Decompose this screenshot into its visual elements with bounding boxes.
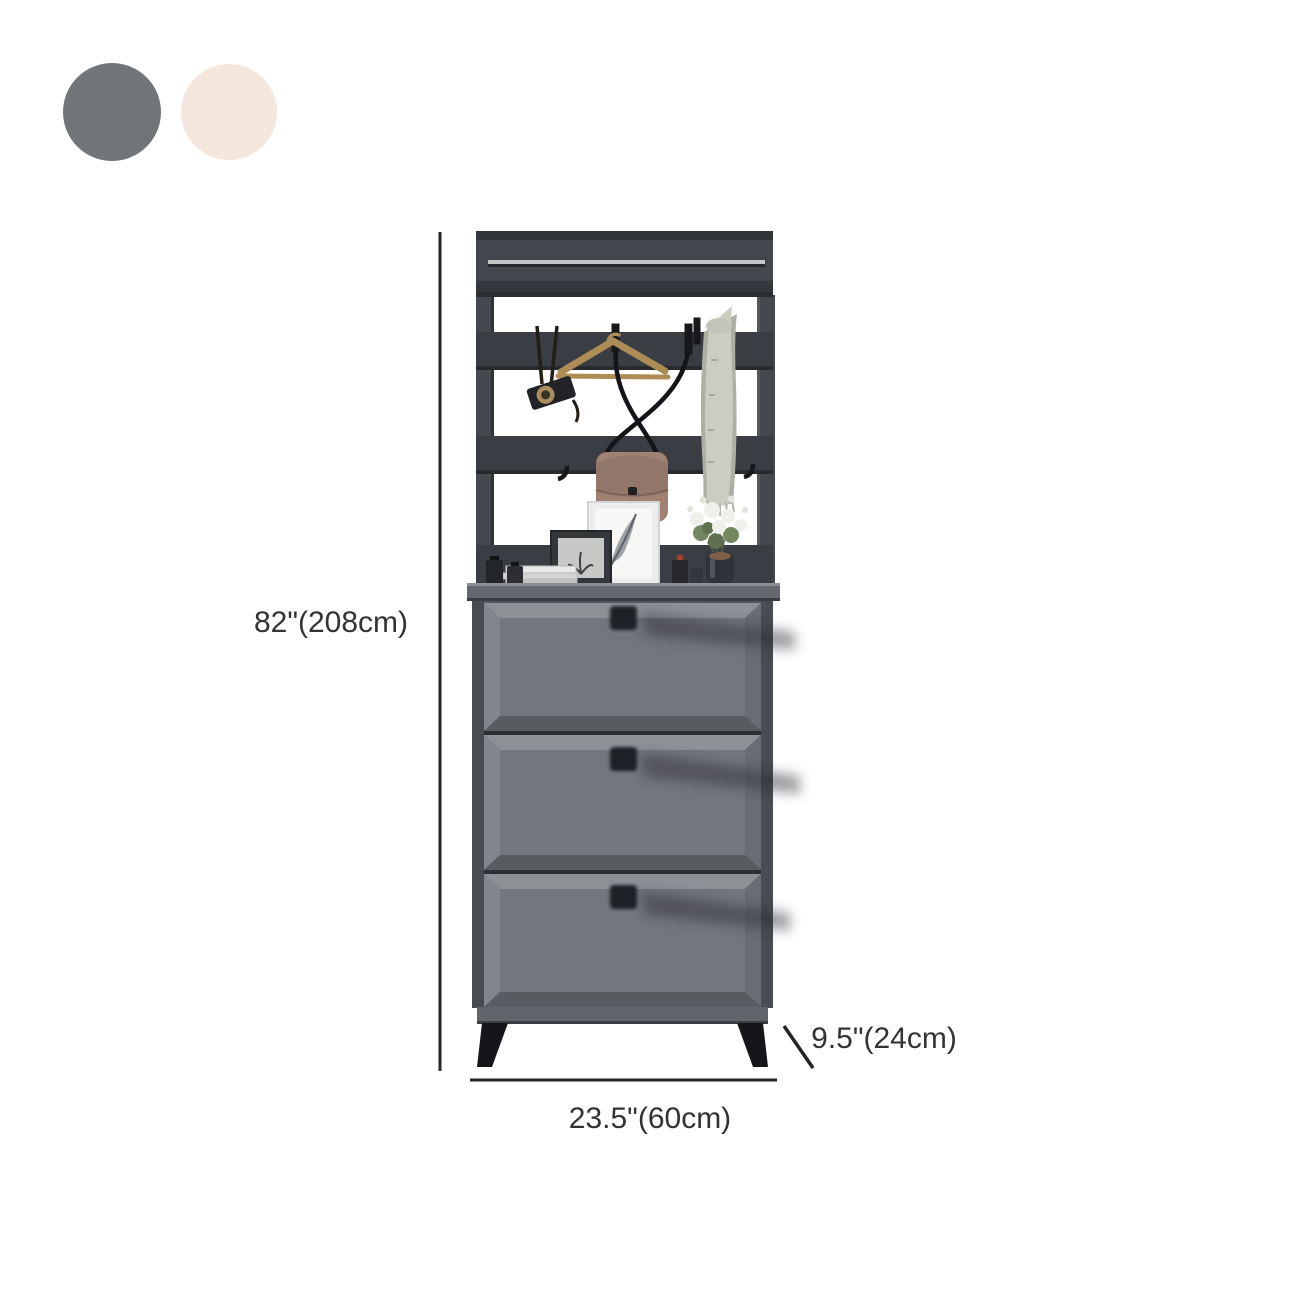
leg-right: [737, 1023, 768, 1067]
product-dimension-diagram: 82"(208cm) 23.5"(60cm) 9.5"(24cm): [0, 0, 1300, 1300]
legs: [477, 1023, 768, 1067]
leg-left: [477, 1023, 508, 1067]
drawer-knob: [610, 606, 637, 630]
drawer-2: [484, 735, 800, 870]
drawer-divider: [484, 870, 761, 874]
scarf: [701, 306, 737, 516]
hook-icon: [694, 318, 700, 344]
counter-top: [467, 583, 780, 601]
drawer-knob: [610, 747, 637, 771]
counter-decor: [486, 496, 748, 586]
drawer-knob: [610, 885, 637, 909]
height-label: 82"(208cm): [254, 606, 408, 639]
depth-dimension-line: [784, 1026, 813, 1068]
top-cabinet-box: [476, 231, 773, 297]
swatch-cream[interactable]: [181, 64, 277, 160]
base-plinth: [477, 1007, 768, 1024]
drawer-divider: [484, 731, 761, 735]
swatch-gray[interactable]: [63, 63, 161, 161]
metal-rail: [488, 260, 765, 264]
color-swatch-group: [63, 63, 277, 161]
hook-icon: [685, 324, 692, 354]
width-label: 23.5"(60cm): [569, 1102, 731, 1135]
depth-label: 9.5"(24cm): [811, 1022, 957, 1055]
drawer-1: [484, 603, 795, 731]
furniture-illustration: [467, 231, 800, 1067]
drawer-3: [484, 874, 790, 1007]
